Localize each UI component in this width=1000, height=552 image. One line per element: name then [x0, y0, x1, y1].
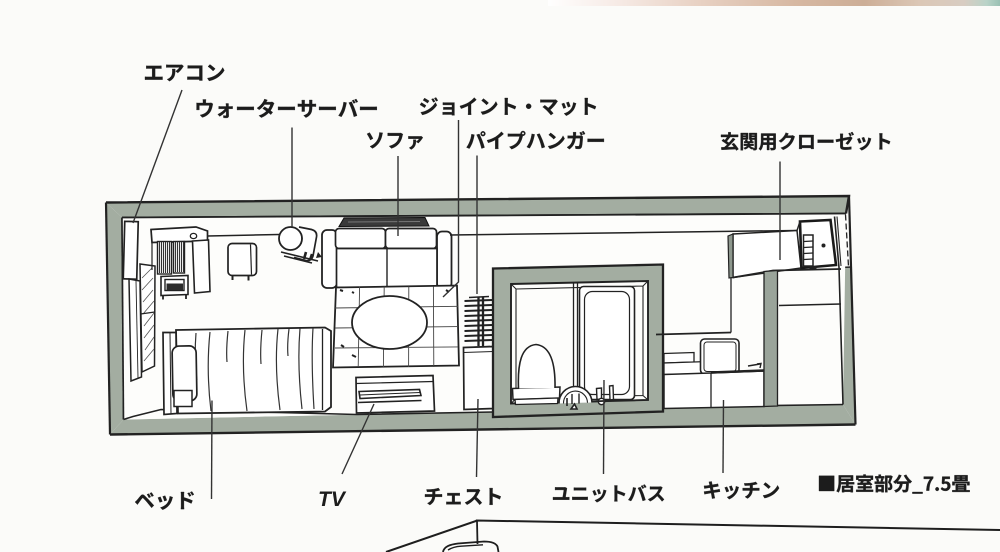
svg-text:TV: TV — [318, 488, 347, 511]
